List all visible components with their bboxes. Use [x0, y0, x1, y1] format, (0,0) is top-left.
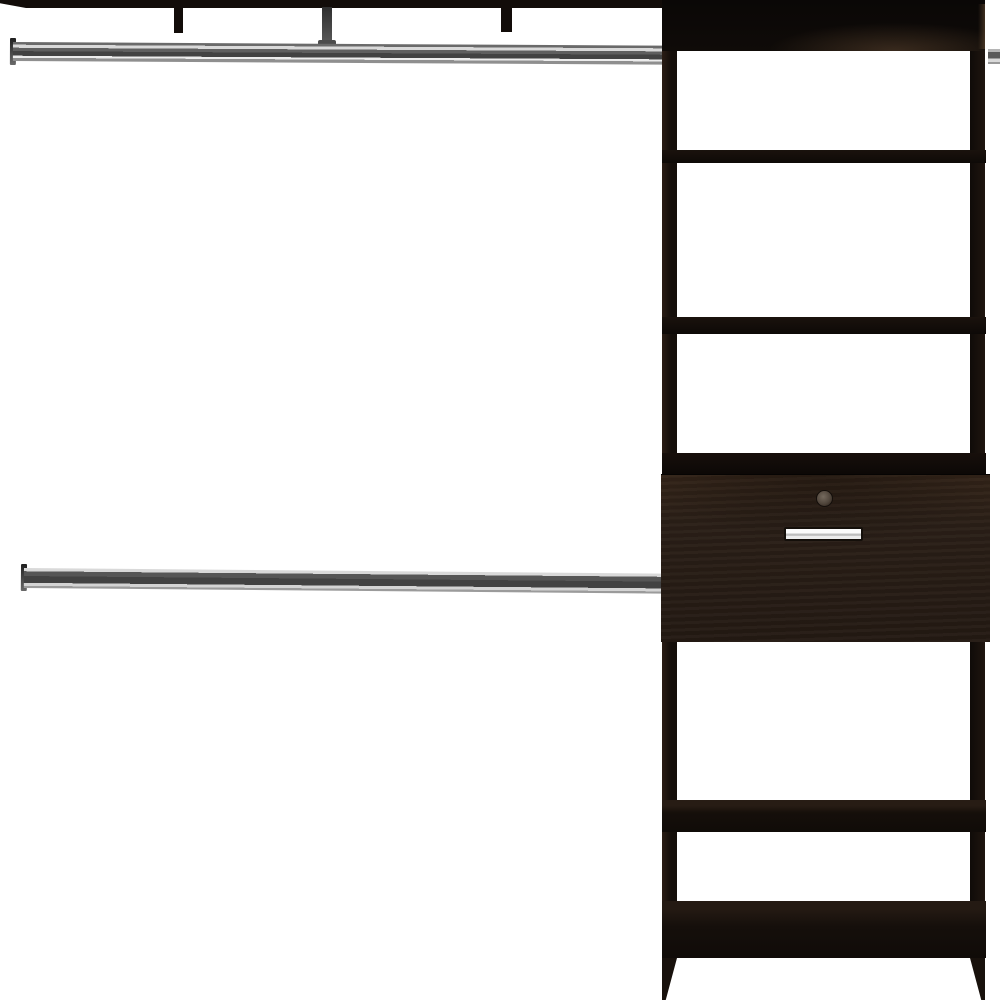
tower-shelf-above-drawer: [662, 453, 986, 474]
rod-body: [13, 42, 663, 65]
closet-organizer-product-photo: [0, 0, 1000, 1000]
tower-top-cabinet: [662, 0, 985, 51]
rod-hanger-support: [322, 7, 332, 44]
tower-right-foot: [970, 958, 985, 1000]
tower-shelf-1: [662, 150, 986, 163]
right-rod-stub: [988, 49, 1000, 64]
tower-left-foot: [662, 958, 677, 1000]
tower-lower-shelf: [662, 800, 986, 832]
drawer-front: [661, 474, 990, 642]
cam-lock-knob: [817, 491, 832, 506]
tower-shelf-2: [662, 317, 986, 334]
tower-base-shelf: [662, 901, 986, 958]
rod-body: [24, 568, 664, 594]
hanger-support-right: [501, 7, 512, 32]
upper-hanging-rod: [10, 42, 663, 65]
drawer-handle: [784, 527, 863, 541]
lower-hanging-rod: [21, 568, 664, 594]
hanger-support-left: [174, 7, 183, 33]
